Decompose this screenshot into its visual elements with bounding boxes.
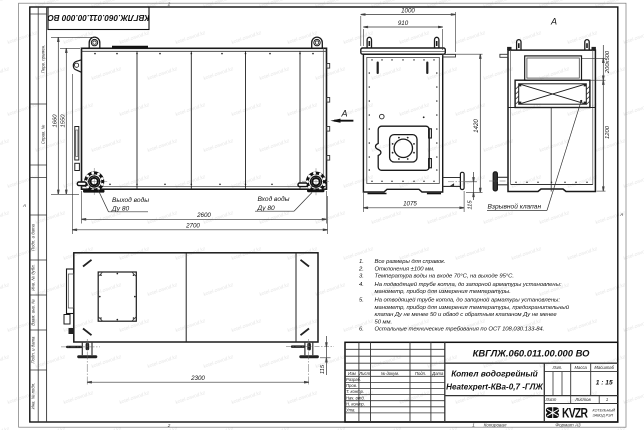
svg-text:kotel-zavod.kz: kotel-zavod.kz (567, 174, 599, 190)
svg-text:2600: 2600 (196, 212, 211, 219)
svg-text:kotel-zavod.kz: kotel-zavod.kz (147, 210, 179, 226)
svg-text:kotel-zavod.kz: kotel-zavod.kz (203, 0, 235, 10)
svg-text:Листов: Листов (574, 397, 591, 402)
svg-text:Инв. № подл.: Инв. № подл. (30, 383, 35, 410)
svg-text:kotel-zavod.kz: kotel-zavod.kz (63, 246, 95, 262)
svg-text:910: 910 (398, 20, 409, 27)
svg-text:Все размеры для справок.: Все размеры для справок. (375, 259, 446, 265)
svg-text:Подп.: Подп. (415, 371, 426, 376)
svg-text:Пров.: Пров. (346, 383, 357, 388)
svg-text:kotel-zavod.kz: kotel-zavod.kz (371, 66, 403, 82)
svg-text:kotel-zavod.kz: kotel-zavod.kz (231, 102, 263, 118)
svg-text:kotel-zavod.kz: kotel-zavod.kz (455, 390, 487, 406)
svg-text:Справ. №: Справ. № (41, 124, 46, 144)
svg-text:kotel-zavod.kz: kotel-zavod.kz (427, 210, 459, 226)
svg-text:Утв.: Утв. (346, 408, 356, 413)
svg-text:kotel-zavod.kz: kotel-zavod.kz (595, 138, 627, 154)
svg-text:клапан Ду не менее 50 и обвод: клапан Ду не менее 50 и обвод с обратным… (375, 312, 558, 318)
svg-text:kotel-zavod.kz: kotel-zavod.kz (259, 138, 291, 154)
svg-text:1000: 1000 (401, 7, 415, 14)
svg-text:Подп. и дата: Подп. и дата (30, 336, 35, 364)
svg-text:kotel-zavod.kz: kotel-zavod.kz (147, 354, 179, 370)
svg-text:1: 1 (472, 423, 475, 428)
svg-text:1660: 1660 (52, 114, 58, 128)
svg-text:kotel-zavod.kz: kotel-zavod.kz (63, 318, 95, 334)
svg-text:kotel-zavod.kz: kotel-zavod.kz (119, 102, 151, 118)
svg-text:КВГЛЖ.060.011.00.000 ВО: КВГЛЖ.060.011.00.000 ВО (47, 13, 150, 22)
svg-text:kotel-zavod.kz: kotel-zavod.kz (511, 246, 543, 262)
svg-text:kotel-zavod.kz: kotel-zavod.kz (595, 426, 627, 430)
svg-text:kotel-zavod.kz: kotel-zavod.kz (455, 246, 487, 262)
svg-text:Лист: Лист (358, 371, 370, 376)
svg-text:1550: 1550 (60, 114, 66, 128)
svg-text:kotel-zavod.kz: kotel-zavod.kz (231, 246, 263, 262)
svg-text:kotel-zavod.kz: kotel-zavod.kz (483, 0, 515, 10)
svg-text:А: А (22, 203, 26, 208)
svg-text:Ду 80: Ду 80 (111, 205, 130, 212)
svg-text:kotel-zavod.kz: kotel-zavod.kz (315, 426, 347, 430)
svg-text:Лит.: Лит. (552, 365, 563, 370)
svg-text:kotel-zavod.kz: kotel-zavod.kz (119, 318, 151, 334)
svg-text:kotel-zavod.kz: kotel-zavod.kz (315, 282, 347, 298)
svg-text:kotel-zavod.kz: kotel-zavod.kz (91, 282, 123, 298)
svg-text:kotel-zavod.kz: kotel-zavod.kz (35, 354, 67, 370)
svg-text:50 мм.: 50 мм. (375, 320, 393, 326)
svg-text:kotel-zavod.kz: kotel-zavod.kz (63, 390, 95, 406)
svg-text:kotel-zavod.kz: kotel-zavod.kz (567, 246, 599, 262)
svg-text:kotel-zavod.kz: kotel-zavod.kz (7, 30, 39, 46)
svg-text:манометр, прибор для измерения: манометр, прибор для измерения температу… (375, 304, 570, 311)
svg-text:3.: 3. (359, 274, 364, 280)
svg-text:Подп. и дата: Подп. и дата (30, 223, 35, 251)
svg-text:kotel-zavod.kz: kotel-zavod.kz (175, 246, 207, 262)
svg-text:На подводящей трубе котла, до: На подводящей трубе котла, до запорной а… (375, 281, 562, 288)
svg-text:ЗАВОД РЭП: ЗАВОД РЭП (593, 414, 614, 418)
svg-text:kotel-zavod.kz: kotel-zavod.kz (231, 30, 263, 46)
svg-text:Инв. № дубл.: Инв. № дубл. (30, 264, 35, 290)
svg-text:kotel-zavod.kz: kotel-zavod.kz (259, 282, 291, 298)
svg-text:kotel-zavod.kz: kotel-zavod.kz (483, 210, 515, 226)
svg-text:kotel-zavod.kz: kotel-zavod.kz (595, 282, 627, 298)
svg-text:kotel-zavod.kz: kotel-zavod.kz (35, 138, 67, 154)
svg-text:kotel-zavod.kz: kotel-zavod.kz (91, 426, 123, 430)
svg-text:Heatexpert-КВа-0,7 -ГЛЖ: Heatexpert-КВа-0,7 -ГЛЖ (446, 383, 543, 392)
svg-text:kotel-zavod.kz: kotel-zavod.kz (175, 174, 207, 190)
svg-text:2: 2 (167, 1, 171, 6)
svg-text:kotel-zavod.kz: kotel-zavod.kz (91, 138, 123, 154)
svg-text:kotel-zavod.kz: kotel-zavod.kz (399, 102, 431, 118)
svg-text:kotel-zavod.kz: kotel-zavod.kz (35, 0, 67, 10)
svg-text:kotel-zavod.kz: kotel-zavod.kz (427, 0, 459, 10)
svg-text:kotel-zavod.kz: kotel-zavod.kz (0, 426, 11, 430)
svg-text:kotel-zavod.kz: kotel-zavod.kz (259, 354, 291, 370)
svg-text:5.: 5. (359, 298, 364, 304)
svg-text:2.: 2. (358, 266, 364, 272)
svg-text:kotel-zavod.kz: kotel-zavod.kz (539, 138, 571, 154)
svg-text:kotel-zavod.kz: kotel-zavod.kz (231, 390, 263, 406)
svg-text:kotel-zavod.kz: kotel-zavod.kz (371, 0, 403, 10)
svg-text:1200: 1200 (605, 125, 611, 139)
svg-text:kotel-zavod.kz: kotel-zavod.kz (203, 426, 235, 430)
svg-text:Копировал: Копировал (484, 423, 507, 428)
svg-text:kotel-zavod.kz: kotel-zavod.kz (287, 246, 319, 262)
svg-text:kotel-zavod.kz: kotel-zavod.kz (399, 390, 431, 406)
svg-text:kotel-zavod.kz: kotel-zavod.kz (203, 282, 235, 298)
svg-text:Выход воды: Выход воды (112, 196, 149, 204)
svg-text:Остальные технические требован: Остальные технические требования по ОСТ … (375, 327, 545, 333)
svg-text:Котел водогрейный: Котел водогрейный (451, 369, 538, 379)
svg-text:Отклонения ±100 мм.: Отклонения ±100 мм. (375, 266, 435, 272)
svg-text:kotel-zavod.kz: kotel-zavod.kz (63, 30, 95, 46)
svg-text:kotel-zavod.kz: kotel-zavod.kz (147, 282, 179, 298)
svg-text:kotel-zavod.kz: kotel-zavod.kz (511, 390, 543, 406)
svg-text:kotel-zavod.kz: kotel-zavod.kz (455, 30, 487, 46)
svg-text:kotel-zavod.kz: kotel-zavod.kz (0, 0, 11, 10)
svg-text:kotel-zavod.kz: kotel-zavod.kz (483, 138, 515, 154)
svg-text:А: А (619, 212, 623, 217)
svg-text:1075: 1075 (403, 201, 417, 208)
svg-text:200х500: 200х500 (605, 50, 611, 74)
svg-text:4.: 4. (359, 282, 364, 288)
svg-text:kotel-zavod.kz: kotel-zavod.kz (315, 0, 347, 10)
svg-text:kotel-zavod.kz: kotel-zavod.kz (175, 102, 207, 118)
svg-text:kotel-zavod.kz: kotel-zavod.kz (35, 282, 67, 298)
svg-text:kotel-zavod.kz: kotel-zavod.kz (287, 318, 319, 334)
svg-text:Взрывной клапан: Взрывной клапан (488, 203, 542, 211)
svg-text:kotel-zavod.kz: kotel-zavod.kz (455, 102, 487, 118)
svg-text:1 : 15: 1 : 15 (596, 380, 613, 387)
svg-text:kotel-zavod.kz: kotel-zavod.kz (567, 318, 599, 334)
svg-text:2700: 2700 (185, 223, 200, 230)
svg-text:kotel-zavod.kz: kotel-zavod.kz (35, 210, 67, 226)
svg-text:kotel-zavod.kz: kotel-zavod.kz (259, 426, 291, 430)
svg-text:Лист: Лист (545, 397, 557, 402)
svg-text:kotel-zavod.kz: kotel-zavod.kz (119, 30, 151, 46)
svg-text:6.: 6. (359, 327, 364, 333)
svg-text:kotel-zavod.kz: kotel-zavod.kz (287, 390, 319, 406)
svg-text:№ докум.: № докум. (381, 371, 399, 376)
svg-text:kotel-zavod.kz: kotel-zavod.kz (0, 282, 11, 298)
svg-text:115: 115 (468, 200, 474, 210)
svg-text:kotel-zavod.kz: kotel-zavod.kz (147, 426, 179, 430)
svg-text:kotel-zavod.kz: kotel-zavod.kz (0, 354, 11, 370)
svg-text:kotel-zavod.kz: kotel-zavod.kz (427, 426, 459, 430)
svg-text:kotel-zavod.kz: kotel-zavod.kz (399, 174, 431, 190)
svg-text:kotel-zavod.kz: kotel-zavod.kz (119, 246, 151, 262)
svg-text:Разраб.: Разраб. (346, 377, 361, 382)
svg-text:2300: 2300 (190, 375, 205, 382)
svg-text:Температура воды на входе 70°С: Температура воды на входе 70°С, на выход… (375, 274, 514, 280)
svg-text:1: 1 (606, 397, 608, 402)
svg-text:Т. контр.: Т. контр. (346, 389, 364, 394)
svg-text:kotel-zavod.kz: kotel-zavod.kz (0, 66, 11, 82)
svg-text:kotel-zavod.kz: kotel-zavod.kz (343, 174, 375, 190)
svg-text:kotel-zavod.kz: kotel-zavod.kz (287, 102, 319, 118)
svg-text:kotel-zavod.kz: kotel-zavod.kz (539, 66, 571, 82)
svg-text:kotel-zavod.kz: kotel-zavod.kz (175, 318, 207, 334)
svg-text:манометр, прибор для измерения: манометр, прибор для измерения температу… (375, 289, 511, 295)
svg-text:kotel-zavod.kz: kotel-zavod.kz (35, 426, 67, 430)
svg-text:kotel-zavod.kz: kotel-zavod.kz (203, 354, 235, 370)
svg-text:KVZR: KVZR (562, 405, 588, 421)
svg-text:kotel-zavod.kz: kotel-zavod.kz (91, 0, 123, 10)
svg-text:kotel-zavod.kz: kotel-zavod.kz (0, 138, 11, 154)
svg-text:kotel-zavod.kz: kotel-zavod.kz (147, 0, 179, 10)
svg-text:kotel-zavod.kz: kotel-zavod.kz (203, 138, 235, 154)
svg-text:kotel-zavod.kz: kotel-zavod.kz (119, 174, 151, 190)
svg-text:А: А (340, 109, 347, 119)
svg-text:115: 115 (320, 364, 326, 374)
svg-text:1420: 1420 (473, 119, 480, 133)
svg-text:КВГЛЖ.060.011.00.000 ВО: КВГЛЖ.060.011.00.000 ВО (473, 348, 591, 359)
svg-text:kotel-zavod.kz: kotel-zavod.kz (371, 210, 403, 226)
svg-text:kotel-zavod.kz: kotel-zavod.kz (539, 0, 571, 10)
svg-text:2: 2 (167, 423, 171, 428)
svg-text:Взам. инв. №: Взам. инв. № (30, 299, 35, 326)
svg-text:kotel-zavod.kz: kotel-zavod.kz (203, 66, 235, 82)
svg-text:kotel-zavod.kz: kotel-zavod.kz (175, 390, 207, 406)
svg-text:kotel-zavod.kz: kotel-zavod.kz (399, 30, 431, 46)
svg-text:kotel-zavod.kz: kotel-zavod.kz (315, 138, 347, 154)
svg-text:Дата: Дата (431, 371, 444, 376)
svg-text:kotel-zavod.kz: kotel-zavod.kz (259, 66, 291, 82)
svg-text:kotel-zavod.kz: kotel-zavod.kz (567, 30, 599, 46)
svg-text:kotel-zavod.kz: kotel-zavod.kz (231, 174, 263, 190)
svg-text:kotel-zavod.kz: kotel-zavod.kz (595, 0, 627, 10)
svg-text:Вход воды: Вход воды (258, 195, 290, 203)
svg-text:Формат А3: Формат А3 (555, 423, 581, 428)
svg-text:kotel-zavod.kz: kotel-zavod.kz (119, 390, 151, 406)
svg-text:На отводящей трубе котла, до з: На отводящей трубе котла, до запорной ар… (375, 297, 561, 304)
svg-text:kotel-zavod.kz: kotel-zavod.kz (147, 66, 179, 82)
svg-text:Масса: Масса (575, 365, 588, 370)
svg-text:Н. контр.: Н. контр. (346, 401, 365, 406)
svg-text:Ду 80: Ду 80 (257, 205, 276, 212)
svg-text:kotel-zavod.kz: kotel-zavod.kz (315, 66, 347, 82)
svg-text:kotel-zavod.kz: kotel-zavod.kz (175, 30, 207, 46)
svg-text:kotel-zavod.kz: kotel-zavod.kz (91, 66, 123, 82)
svg-text:kotel-zavod.kz: kotel-zavod.kz (63, 102, 95, 118)
svg-text:kotel-zavod.kz: kotel-zavod.kz (511, 30, 543, 46)
svg-text:Масштаб: Масштаб (594, 365, 614, 370)
svg-text:Изм: Изм (348, 371, 356, 376)
svg-text:kotel-zavod.kz: kotel-zavod.kz (539, 210, 571, 226)
svg-text:kotel-zavod.kz: kotel-zavod.kz (0, 210, 11, 226)
svg-text:kotel-zavod.kz: kotel-zavod.kz (231, 318, 263, 334)
svg-text:kotel-zavod.kz: kotel-zavod.kz (259, 210, 291, 226)
svg-text:kotel-zavod.kz: kotel-zavod.kz (259, 0, 291, 10)
svg-text:kotel-zavod.kz: kotel-zavod.kz (315, 210, 347, 226)
svg-text:kotel-zavod.kz: kotel-zavod.kz (371, 426, 403, 430)
svg-text:Перв. примен.: Перв. примен. (41, 45, 46, 74)
svg-text:Нач. отд.: Нач. отд. (346, 395, 365, 400)
svg-text:kotel-zavod.kz: kotel-zavod.kz (147, 138, 179, 154)
svg-text:kotel-zavod.kz: kotel-zavod.kz (483, 66, 515, 82)
svg-text:КОТЕЛЬНЫЙ: КОТЕЛЬНЫЙ (593, 409, 616, 413)
svg-text:kotel-zavod.kz: kotel-zavod.kz (35, 66, 67, 82)
svg-text:1.: 1. (359, 259, 364, 265)
svg-text:А: А (550, 16, 557, 26)
svg-text:kotel-zavod.kz: kotel-zavod.kz (7, 174, 39, 190)
